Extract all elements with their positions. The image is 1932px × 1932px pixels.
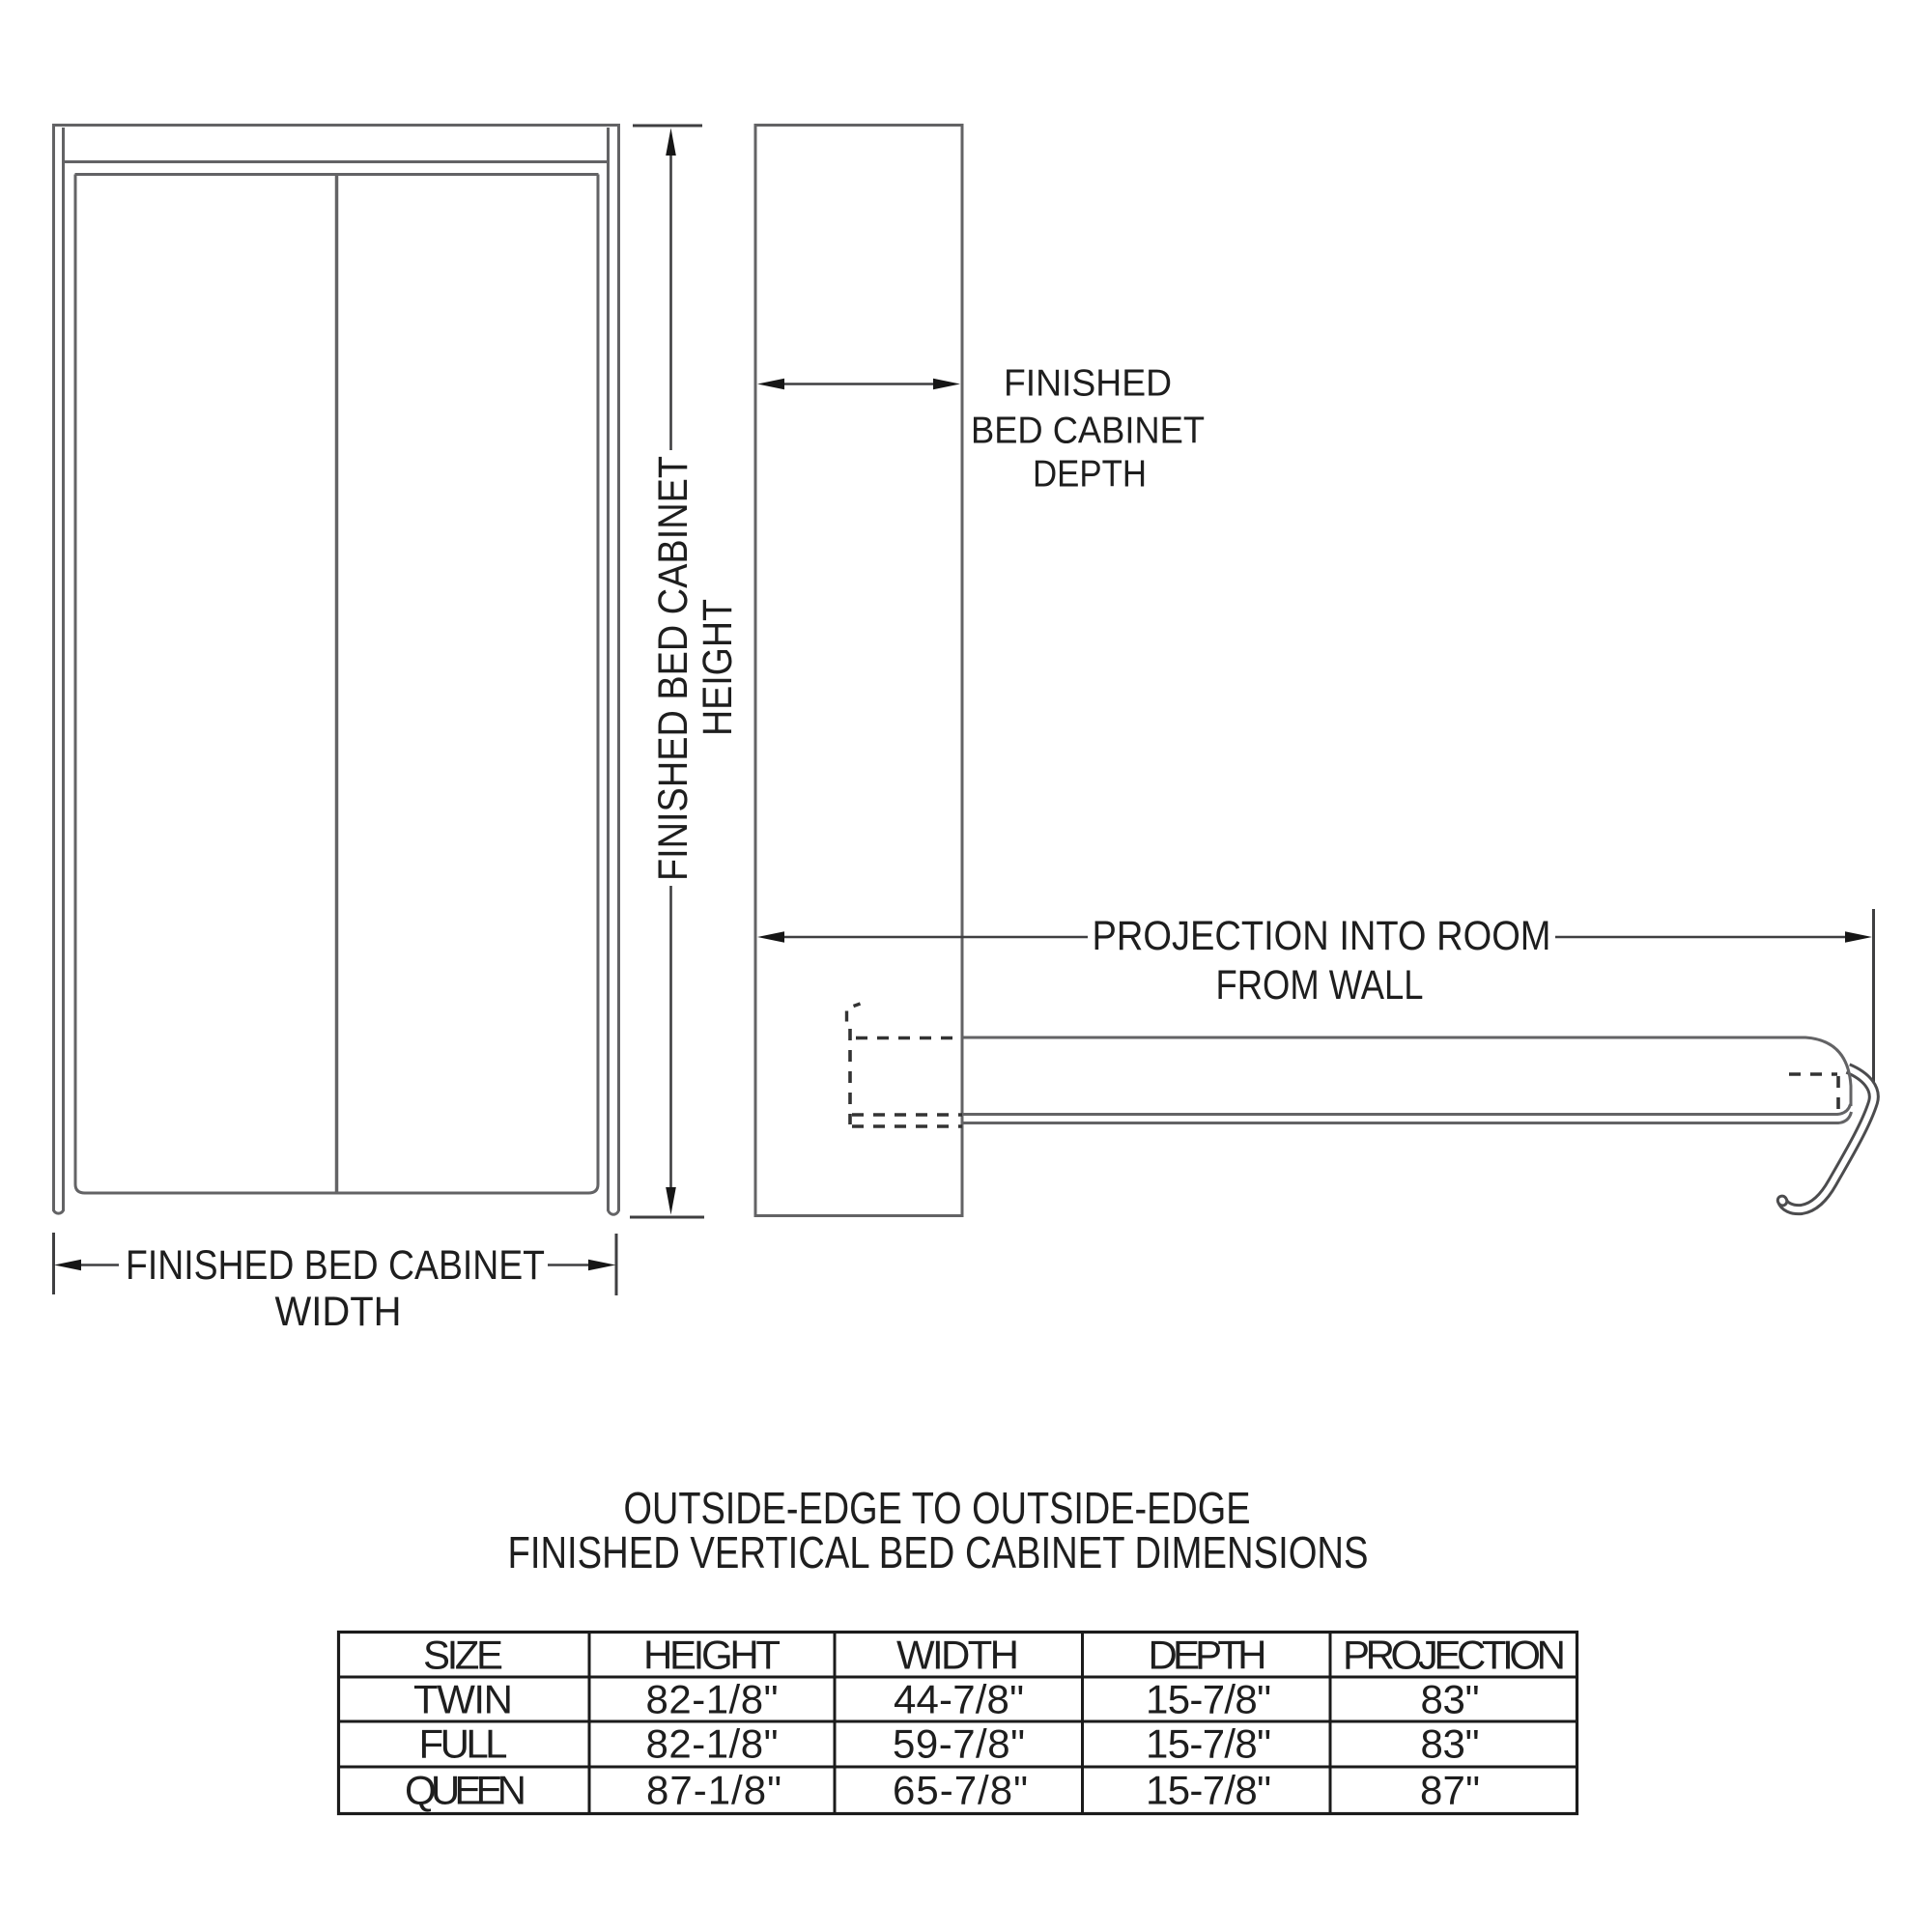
svg-text:DEPTH: DEPTH xyxy=(1149,1633,1267,1678)
svg-text:FINISHED: FINISHED xyxy=(1004,363,1172,405)
svg-text:WIDTH: WIDTH xyxy=(896,1633,1019,1678)
svg-text:BED CABINET: BED CABINET xyxy=(971,411,1205,452)
svg-text:FINISHED BED CABINET: FINISHED BED CABINET xyxy=(126,1242,545,1289)
svg-text:FULL: FULL xyxy=(419,1721,508,1767)
svg-text:QUEEN: QUEEN xyxy=(405,1768,526,1813)
svg-text:87": 87" xyxy=(1420,1768,1480,1813)
svg-text:83": 83" xyxy=(1421,1677,1480,1722)
svg-text:HEIGHT: HEIGHT xyxy=(643,1633,781,1678)
svg-text:TWIN: TWIN xyxy=(413,1677,513,1722)
svg-text:HEIGHT: HEIGHT xyxy=(695,599,741,736)
svg-text:65-7/8": 65-7/8" xyxy=(893,1768,1028,1813)
svg-text:SIZE: SIZE xyxy=(423,1633,503,1678)
svg-text:87-1/8": 87-1/8" xyxy=(646,1768,781,1813)
svg-text:DEPTH: DEPTH xyxy=(1033,454,1147,496)
svg-text:15-7/8": 15-7/8" xyxy=(1146,1721,1271,1767)
svg-text:PROJECTION: PROJECTION xyxy=(1343,1633,1566,1678)
svg-text:FROM WALL: FROM WALL xyxy=(1216,962,1424,1009)
svg-text:44-7/8": 44-7/8" xyxy=(894,1677,1024,1722)
svg-text:59-7/8": 59-7/8" xyxy=(893,1721,1025,1767)
svg-text:FINISHED BED CABINET: FINISHED BED CABINET xyxy=(650,456,696,881)
svg-text:PROJECTION INTO ROOM: PROJECTION INTO ROOM xyxy=(1093,913,1551,959)
svg-text:82-1/8": 82-1/8" xyxy=(646,1721,779,1767)
svg-text:82-1/8": 82-1/8" xyxy=(646,1677,779,1722)
svg-text:15-7/8": 15-7/8" xyxy=(1146,1677,1271,1722)
svg-text:WIDTH: WIDTH xyxy=(275,1289,402,1335)
svg-text:83": 83" xyxy=(1421,1721,1480,1767)
svg-text:FINISHED VERTICAL BED CABINET: FINISHED VERTICAL BED CABINET DIMENSIONS xyxy=(508,1527,1369,1577)
svg-text:OUTSIDE-EDGE TO OUTSIDE-EDGE: OUTSIDE-EDGE TO OUTSIDE-EDGE xyxy=(624,1483,1251,1533)
svg-text:15-7/8": 15-7/8" xyxy=(1146,1768,1271,1813)
